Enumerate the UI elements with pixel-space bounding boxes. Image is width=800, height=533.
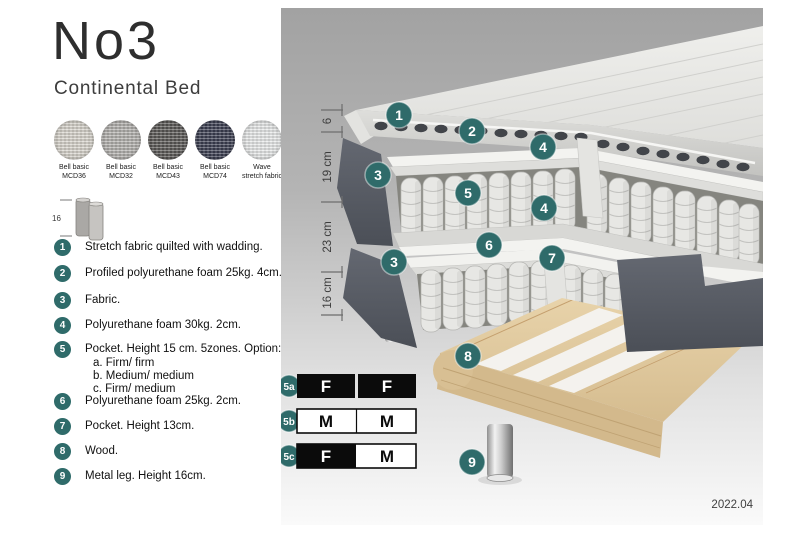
callout-3-lower: 3	[381, 249, 407, 275]
callout-5: 5	[455, 180, 481, 206]
callout-6: 6	[476, 232, 502, 258]
swatch-mcd74: Bell basicMCD74	[193, 120, 237, 181]
swatch-label: Wave	[253, 164, 271, 171]
dim-label-16: 16 cm	[322, 277, 334, 308]
fabric-swatch-circle	[54, 120, 94, 160]
firmness-cell: F	[321, 377, 331, 396]
spec-item-text: Metal leg. Height 16cm.	[85, 468, 206, 482]
callout-4-upper: 4	[530, 134, 556, 160]
spec-item-text: Profiled polyurethane foam 25kg. 4cm.	[85, 265, 282, 279]
firmness-cell: F	[321, 447, 331, 466]
spec-item-text: Fabric.	[85, 292, 120, 306]
spec-number-badge: 7	[54, 418, 71, 435]
svg-text:5a: 5a	[283, 382, 295, 393]
spec-number-badge: 8	[54, 443, 71, 460]
spec-item-3: 3 Fabric.	[54, 292, 120, 309]
fabric-swatch-circle	[148, 120, 188, 160]
svg-text:5c: 5c	[283, 452, 295, 463]
spec-item-text: Polyurethane foam 25kg. 2cm.	[85, 393, 241, 407]
spec-item-6: 6 Polyurethane foam 25kg. 2cm.	[54, 393, 241, 410]
spec-item-text: Wood.	[85, 443, 118, 457]
svg-text:7: 7	[548, 250, 556, 266]
fabric-swatch-circle	[101, 120, 141, 160]
callout-2: 2	[459, 118, 485, 144]
spec-number-badge: 4	[54, 317, 71, 334]
spec-item-2: 2 Profiled polyurethane foam 25kg. 4cm.	[54, 265, 282, 282]
spec-number-badge: 6	[54, 393, 71, 410]
fabric-swatch-circle	[242, 120, 282, 160]
firmness-options: 5a F F 5b M M 5c F M	[281, 374, 416, 468]
svg-text:2: 2	[468, 123, 476, 139]
swatch-mcd43: Bell basicMCD43	[146, 120, 190, 181]
spec-item-text: Stretch fabric quilted with wadding.	[85, 239, 263, 253]
spec-number-badge: 9	[54, 468, 71, 485]
svg-text:3: 3	[374, 167, 382, 183]
svg-text:8: 8	[464, 348, 472, 364]
bed-cutaway-illustration: 6 19 cm 23 cm 16 cm 1 2 4 3 5 4 6 7 3 8 …	[281, 8, 763, 525]
svg-text:6: 6	[485, 237, 493, 253]
firmness-row-5c: 5c F M	[281, 444, 416, 468]
firmness-cell: M	[319, 412, 333, 431]
leg-icon	[89, 203, 103, 240]
spec-item-9: 9 Metal leg. Height 16cm.	[54, 468, 206, 485]
swatch-mcd32: Bell basicMCD32	[99, 120, 143, 181]
spec-item-text: Pocket. Height 15 cm. 5zones. Option:	[85, 341, 281, 355]
callout-8: 8	[455, 343, 481, 369]
fabric-swatches: Bell basicMCD36 Bell basicMCD32 Bell bas…	[52, 120, 284, 181]
firmness-cell: F	[382, 377, 392, 396]
swatch-code: MCD32	[109, 173, 133, 180]
dim-label-19: 19 cm	[322, 151, 334, 182]
fabric-swatch-circle	[195, 120, 235, 160]
firmness-row-5b: 5b M M	[281, 409, 416, 433]
spec-number-badge: 3	[54, 292, 71, 309]
firmness-cell: M	[380, 412, 394, 431]
callout-9: 9	[459, 449, 485, 475]
leg-height-label: 16	[52, 214, 61, 223]
spec-item-5-option-a: a. Firm/ firm	[93, 357, 154, 370]
firmness-cell: M	[380, 447, 394, 466]
swatch-code: MCD43	[156, 173, 180, 180]
swatch-code: stretch fabric	[242, 173, 282, 180]
swatch-code: MCD36	[62, 173, 86, 180]
svg-text:1: 1	[395, 107, 403, 123]
metal-leg	[487, 424, 513, 478]
spec-number-badge: 2	[54, 265, 71, 282]
leg-icon	[76, 199, 90, 236]
spec-item-text: Polyurethane foam 30kg. 2cm.	[85, 317, 241, 331]
spec-item-5-option-b: b. Medium/ medium	[93, 370, 194, 383]
svg-text:5: 5	[464, 185, 472, 201]
svg-text:4: 4	[540, 200, 548, 216]
swatch-mcd36: Bell basicMCD36	[52, 120, 96, 181]
spec-item-4: 4 Polyurethane foam 30kg. 2cm.	[54, 317, 241, 334]
callout-3-upper: 3	[365, 162, 391, 188]
svg-text:4: 4	[539, 139, 547, 155]
spec-number-badge: 1	[54, 239, 71, 256]
spec-item-7: 7 Pocket. Height 13cm.	[54, 418, 194, 435]
spec-sheet-page: No3 Continental Bed Bell basicMCD36 Bell…	[0, 0, 800, 533]
swatch-wave-stretch: Wavestretch fabric	[240, 120, 284, 181]
svg-text:5b: 5b	[283, 417, 295, 428]
spec-item-text: Pocket. Height 13cm.	[85, 418, 194, 432]
page-title: No3	[52, 12, 160, 70]
swatch-label: Bell basic	[200, 164, 230, 171]
swatch-code: MCD74	[203, 173, 227, 180]
callout-7: 7	[539, 245, 565, 271]
spec-number-badge: 5	[54, 341, 71, 358]
dim-label-6: 6	[322, 118, 334, 124]
spec-item-1: 1 Stretch fabric quilted with wadding.	[54, 239, 263, 256]
callout-1: 1	[386, 102, 412, 128]
dim-label-23: 23 cm	[322, 221, 334, 252]
page-subtitle: Continental Bed	[54, 78, 201, 100]
leg-height-thumbnail: 16	[48, 194, 128, 242]
version-stamp: 2022.04	[711, 499, 753, 511]
spec-item-8: 8 Wood.	[54, 443, 118, 460]
svg-text:9: 9	[468, 454, 476, 470]
swatch-label: Bell basic	[59, 164, 89, 171]
swatch-label: Bell basic	[153, 164, 183, 171]
callout-4-lower: 4	[531, 195, 557, 221]
swatch-label: Bell basic	[106, 164, 136, 171]
svg-text:3: 3	[390, 254, 398, 270]
firmness-row-5a: 5a F F	[281, 374, 416, 398]
spec-item-5: 5 Pocket. Height 15 cm. 5zones. Option:	[54, 341, 281, 358]
